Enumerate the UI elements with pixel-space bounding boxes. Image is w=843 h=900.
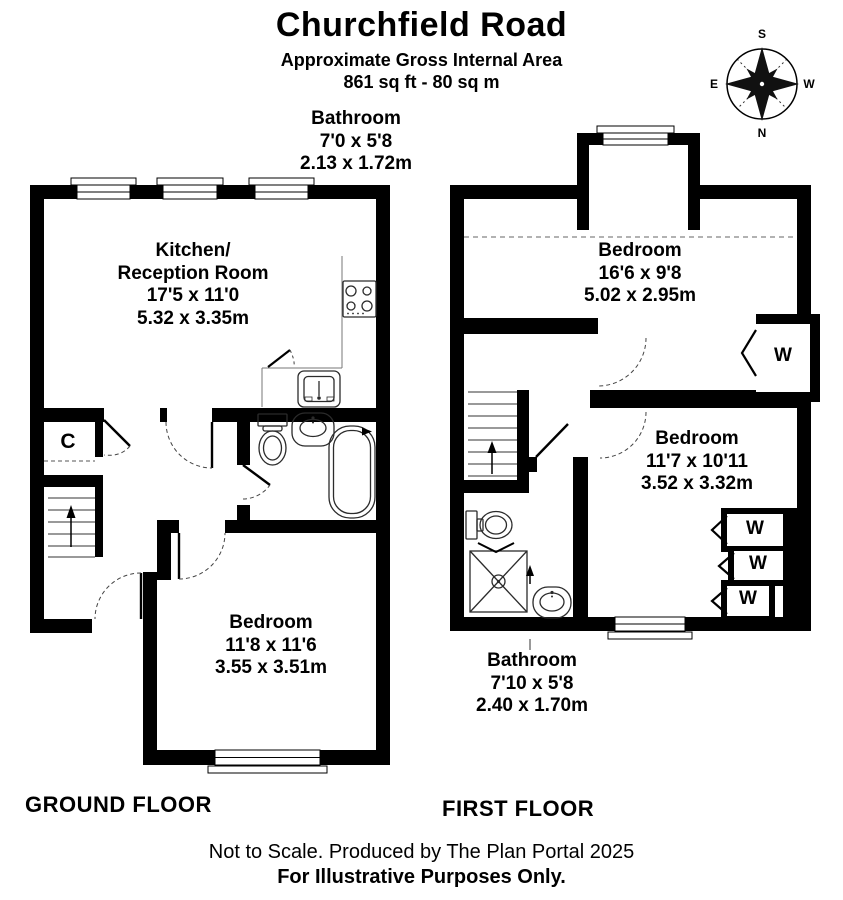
room-dims-metric: 3.52 x 3.32m xyxy=(582,473,812,496)
label-ff-bedroom1: Bedroom 16'6 x 9'8 5.02 x 2.95m xyxy=(525,240,755,308)
compass-letter-left: E xyxy=(705,77,723,91)
subtitle-line1: Approximate Gross Internal Area xyxy=(0,50,843,71)
floor-label-ground: GROUND FLOOR xyxy=(25,792,212,818)
label-ff-bathroom: Bathroom 7'10 x 5'8 2.40 x 1.70m xyxy=(417,650,647,718)
floorplan-page: Churchfield Road Approximate Gross Inter… xyxy=(0,0,843,900)
label-gf-bedroom: Bedroom 11'8 x 11'6 3.55 x 3.51m xyxy=(156,612,386,680)
compass-letter-top: S xyxy=(753,27,771,41)
closet-letter: C xyxy=(56,430,80,454)
room-dims-imperial: 16'6 x 9'8 xyxy=(525,263,755,286)
hob-icon xyxy=(343,281,376,317)
shower-icon xyxy=(470,543,527,612)
room-dims-metric: 2.13 x 1.72m xyxy=(271,153,441,176)
room-dims-imperial: 11'7 x 10'11 xyxy=(582,451,812,474)
room-name: Bathroom xyxy=(417,650,647,673)
floor-label-first: FIRST FLOOR xyxy=(442,796,594,822)
room-dims-imperial: 7'0 x 5'8 xyxy=(271,131,441,154)
room-dims-metric: 5.02 x 2.95m xyxy=(525,285,755,308)
room-name: Bedroom xyxy=(582,428,812,451)
room-dims-metric: 2.40 x 1.70m xyxy=(417,695,647,718)
room-name: Bedroom xyxy=(525,240,755,263)
footer-disclaimer: For Illustrative Purposes Only. xyxy=(0,866,843,889)
wardrobe-letter-1: W xyxy=(740,518,770,540)
page-title: Churchfield Road xyxy=(0,6,843,45)
compass-letter-right: W xyxy=(800,77,818,91)
room-name-line1: Kitchen/ xyxy=(78,240,308,263)
sink-icon xyxy=(298,371,340,407)
room-dims-imperial: 11'8 x 11'6 xyxy=(156,635,386,658)
room-name-line2: Reception Room xyxy=(78,263,308,286)
footer-note: Not to Scale. Produced by The Plan Porta… xyxy=(0,841,843,864)
basin-icon-ff xyxy=(533,587,571,618)
room-dims-metric: 5.32 x 3.35m xyxy=(78,308,308,331)
wardrobe-letter-bedroom1: W xyxy=(768,345,798,367)
room-dims-imperial: 17'5 x 11'0 xyxy=(78,285,308,308)
room-name: Bedroom xyxy=(156,612,386,635)
label-kitchen-reception: Kitchen/ Reception Room 17'5 x 11'0 5.32… xyxy=(78,240,308,330)
ff-windows xyxy=(597,126,692,639)
compass-letter-bottom: N xyxy=(753,126,771,140)
room-dims-metric: 3.55 x 3.51m xyxy=(156,657,386,680)
bathtub-icon xyxy=(329,426,375,518)
wardrobe-letter-3: W xyxy=(733,588,763,610)
label-gf-bathroom: Bathroom 7'0 x 5'8 2.13 x 1.72m xyxy=(271,108,441,176)
stairs-icon-ff xyxy=(468,392,517,476)
label-ff-bedroom2: Bedroom 11'7 x 10'11 3.52 x 3.32m xyxy=(582,428,812,496)
wardrobe-letter-2: W xyxy=(743,553,773,575)
room-name: Bathroom xyxy=(271,108,441,131)
stairs-icon xyxy=(48,498,95,557)
kitchen-door xyxy=(268,350,294,367)
toilet-icon-ff xyxy=(466,511,512,539)
room-dims-imperial: 7'10 x 5'8 xyxy=(417,673,647,696)
